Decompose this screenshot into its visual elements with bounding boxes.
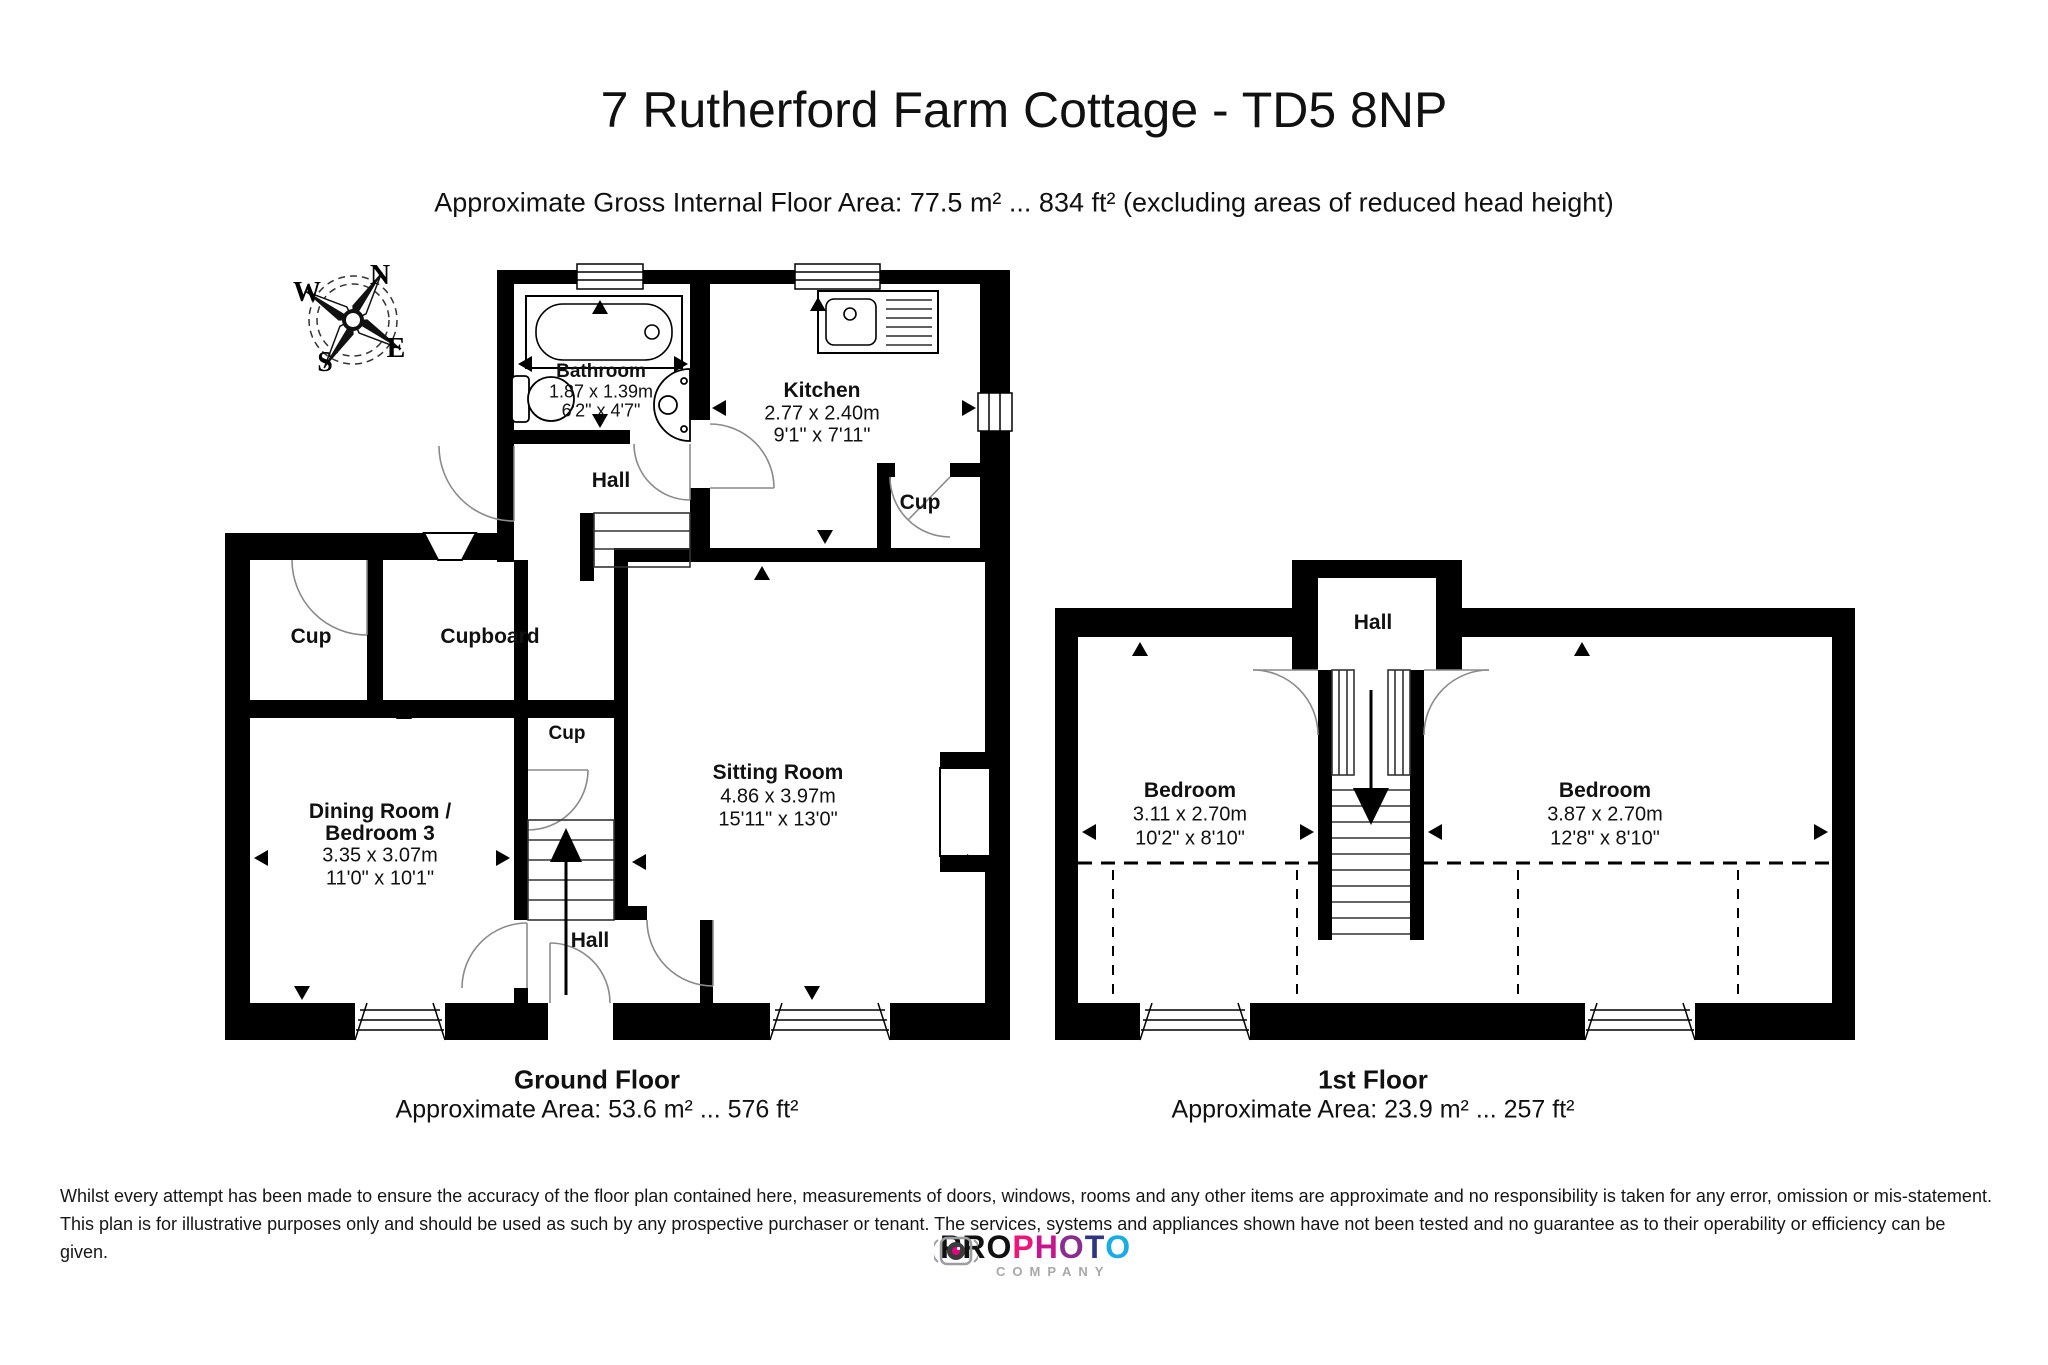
- stairs-up-arrow: [550, 828, 582, 995]
- room-label-cup-stairs: Cup: [549, 723, 586, 745]
- camera-icon: [934, 1232, 978, 1268]
- kitchen-sink-icon: [818, 291, 938, 353]
- room-label-kitchen: Kitchen: [783, 379, 860, 403]
- window: [1140, 1003, 1250, 1040]
- page-subtitle: Approximate Gross Internal Floor Area: 7…: [434, 188, 1614, 219]
- stairs-down-arrow: [1353, 690, 1389, 825]
- dimension-arrow: [712, 400, 726, 416]
- room-label-sitting: Sitting Room: [713, 761, 844, 785]
- dimension-arrow: [496, 850, 510, 866]
- dimension-arrow: [254, 850, 268, 866]
- room-label-cup-kitchen: Cup: [900, 491, 941, 515]
- sink-icon: [654, 369, 690, 441]
- door-arc: [634, 444, 690, 500]
- floorplan-page: N W S E: [0, 0, 2048, 1365]
- compass-rose-icon: N W S E: [276, 243, 430, 397]
- window: [770, 1003, 890, 1040]
- room-dim-bedroom-right-ft: 12'8" x 8'10": [1550, 828, 1660, 851]
- room-dim-kitchen-ft: 9'1" x 7'11": [773, 425, 870, 448]
- room-label-bathroom: Bathroom: [556, 361, 646, 383]
- room-label-hall-1f: Hall: [1354, 611, 1393, 635]
- dimension-arrow: [1082, 824, 1096, 840]
- logo-letter: T: [1085, 1232, 1106, 1262]
- kitchen-fixtures: [818, 291, 938, 353]
- door-arc: [1424, 670, 1489, 735]
- window: [355, 1003, 445, 1040]
- compass-n-label: N: [370, 260, 390, 291]
- dimension-arrow: [817, 530, 833, 544]
- bathtub-icon: [526, 296, 682, 368]
- room-dim-sitting-m: 4.86 x 3.97m: [720, 786, 836, 809]
- reduced-head-height-lines: [1078, 863, 1832, 1003]
- room-dim-bathroom-m: 1.87 x 1.39m: [549, 382, 653, 403]
- stairs-icon: [528, 820, 614, 920]
- logo-letter: O: [1105, 1232, 1131, 1262]
- room-dim-bedroom-left-m: 3.11 x 2.70m: [1133, 804, 1247, 827]
- logo-letter: P: [1012, 1232, 1034, 1262]
- door-arc: [710, 424, 774, 488]
- room-label-bedroom-left: Bedroom: [1144, 779, 1236, 803]
- room-label-bedroom-right: Bedroom: [1559, 779, 1651, 803]
- compass-e-label: E: [387, 333, 406, 364]
- dimension-arrow: [754, 566, 770, 580]
- door-arc: [292, 560, 367, 635]
- door-arc: [528, 770, 588, 830]
- dimension-arrow: [1132, 642, 1148, 656]
- page-title: 7 Rutherford Farm Cottage - TD5 8NP: [601, 81, 1448, 139]
- room-label-hall-upper: Hall: [592, 469, 631, 493]
- room-dim-dining-ft: 11'0" x 10'1": [326, 868, 434, 891]
- first-floor-caption: 1st Floor: [1318, 1065, 1428, 1096]
- room-label-dining-1: Dining Room /: [309, 800, 451, 824]
- dimension-arrow: [1428, 824, 1442, 840]
- room-dim-dining-m: 3.35 x 3.07m: [322, 845, 438, 868]
- room-dim-kitchen-m: 2.77 x 2.40m: [764, 403, 880, 426]
- fireplace-icon: [940, 768, 990, 856]
- dimension-arrow: [294, 986, 310, 1000]
- room-dim-bathroom-ft: 6'2" x 4'7": [562, 401, 641, 422]
- room-dim-bedroom-right-m: 3.87 x 2.70m: [1547, 804, 1663, 827]
- ground-floor-caption: Ground Floor: [514, 1065, 680, 1096]
- dimension-arrow: [962, 400, 976, 416]
- prophoto-logo: PROPHOTO COMPANY: [934, 1232, 1131, 1279]
- disclaimer-line-1: Whilst every attempt has been made to en…: [60, 1182, 1992, 1210]
- room-dim-sitting-ft: 15'11" x 13'0": [718, 809, 837, 832]
- dimension-arrow: [1300, 824, 1314, 840]
- room-dim-bedroom-left-ft: 10'2" x 8'10": [1135, 828, 1245, 851]
- dimension-arrow: [1574, 642, 1590, 656]
- room-label-cup-left: Cup: [291, 625, 332, 649]
- logo-company: COMPANY: [996, 1264, 1131, 1279]
- window: [577, 264, 643, 289]
- ground-floor-area: Approximate Area: 53.6 m² ... 576 ft²: [396, 1096, 799, 1125]
- dimension-arrow: [804, 986, 820, 1000]
- window: [795, 264, 880, 289]
- first-floor-area: Approximate Area: 23.9 m² ... 257 ft²: [1172, 1096, 1575, 1125]
- room-label-dining-2: Bedroom 3: [325, 822, 435, 846]
- first-floor-stairs: [1332, 670, 1410, 934]
- compass-w-label: W: [293, 277, 321, 308]
- room-label-hall-lower: Hall: [571, 929, 610, 953]
- logo-letter: H: [1035, 1232, 1059, 1262]
- window: [978, 393, 1012, 431]
- compass-s-label: S: [317, 347, 333, 378]
- dimension-arrow: [1814, 824, 1828, 840]
- ground-floor-stairs: [528, 513, 690, 995]
- logo-letter: O: [1059, 1232, 1085, 1262]
- door-arc: [1253, 670, 1318, 735]
- door-arc: [462, 923, 527, 988]
- dimension-arrow: [632, 854, 646, 870]
- room-label-cupboard: Cupboard: [440, 625, 539, 649]
- window: [1585, 1003, 1695, 1040]
